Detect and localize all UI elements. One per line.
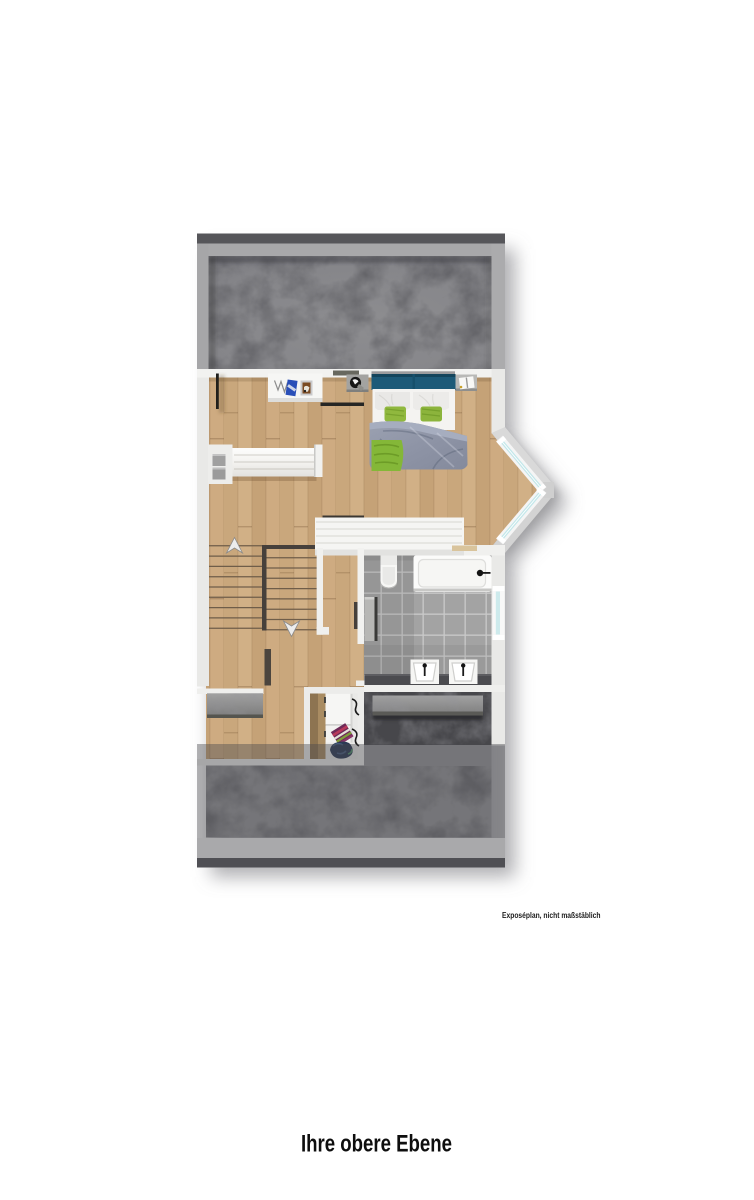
svg-text:Exposéplan, nicht maßstäblich: Exposéplan, nicht maßstäblich xyxy=(502,911,601,920)
svg-text:Ihre obere Ebene: Ihre obere Ebene xyxy=(301,1131,452,1158)
